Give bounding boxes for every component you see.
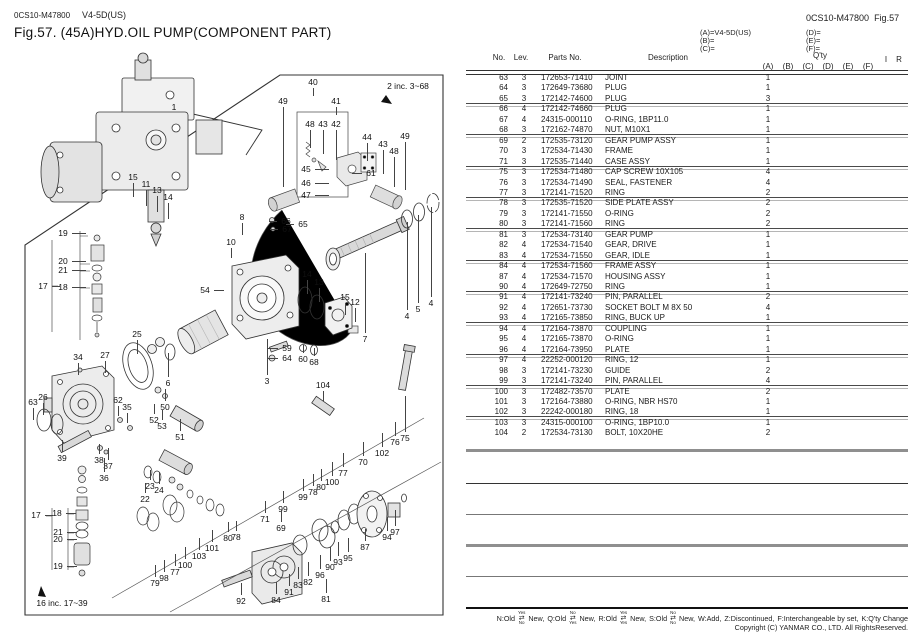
leader-line <box>348 538 349 552</box>
callout-96: 96 <box>315 570 324 580</box>
leader-line <box>185 547 186 559</box>
callout-87: 87 <box>360 542 369 552</box>
callout-67: 67 <box>282 224 291 234</box>
legend-text: W:Add, <box>698 614 721 623</box>
leader-line <box>303 479 304 491</box>
callout-1: 1 <box>172 102 177 112</box>
leader-line <box>319 288 320 302</box>
callout-17: 17 <box>31 510 40 520</box>
callout-92: 92 <box>236 596 245 606</box>
leader-line <box>108 448 109 460</box>
leader-line <box>382 433 383 447</box>
callout-27: 27 <box>100 350 109 360</box>
leader-line <box>363 442 364 456</box>
callout-43: 43 <box>378 139 387 149</box>
callout-22: 22 <box>140 494 149 504</box>
callout-98: 98 <box>159 573 168 583</box>
leader-line <box>67 532 77 533</box>
callout-19: 19 <box>53 561 62 571</box>
leader-line <box>313 88 314 96</box>
callout-18: 18 <box>58 282 67 292</box>
leader-line <box>270 229 278 230</box>
leader-line <box>315 195 329 196</box>
callout-7: 7 <box>363 334 368 344</box>
leader-line <box>367 143 368 161</box>
callout-101: 101 <box>205 543 219 553</box>
leader-line <box>308 562 309 576</box>
callout-39: 39 <box>57 453 66 463</box>
leader-line <box>78 363 79 375</box>
callout-4: 4 <box>429 298 434 308</box>
callout-104: 104 <box>316 380 330 390</box>
leader-line <box>267 339 268 375</box>
assembled-pump-art <box>41 53 222 246</box>
leader-line <box>320 555 321 569</box>
leader-line <box>395 422 396 436</box>
copyright: Copyright (C) YANMAR CO., LTD. All Right… <box>466 623 908 632</box>
legend-text: K:Q'ty Change <box>861 614 908 623</box>
leader-line <box>355 308 356 322</box>
callout-100: 100 <box>178 560 192 570</box>
leader-line <box>326 579 327 593</box>
callout-48: 48 <box>305 119 314 129</box>
callout-42: 42 <box>331 119 340 129</box>
callout-69: 69 <box>276 523 285 533</box>
leader-line <box>104 458 105 472</box>
leader-line <box>268 358 278 359</box>
legend-text: New, <box>528 614 544 623</box>
callout-53: 53 <box>157 421 166 431</box>
leader-line <box>395 510 396 526</box>
callout-77: 77 <box>338 468 347 478</box>
leader-line <box>72 270 86 271</box>
inc2-arrow-icon <box>381 95 392 104</box>
leader-line <box>199 538 200 550</box>
leader-line <box>330 547 331 561</box>
leader-line <box>72 261 86 262</box>
leader-line <box>133 183 134 197</box>
leader-line <box>265 501 266 513</box>
leader-line <box>276 582 277 594</box>
leader-line <box>146 190 147 206</box>
leader-line <box>352 173 362 174</box>
leader-line <box>180 419 181 431</box>
callout-14: 14 <box>302 269 311 279</box>
leader-line <box>313 474 314 486</box>
leader-line <box>314 348 315 356</box>
leader-line <box>72 233 86 234</box>
leader-line <box>338 542 339 556</box>
callout-70: 70 <box>358 457 367 467</box>
leader-line <box>383 150 384 174</box>
leader-line <box>405 396 406 432</box>
leader-line <box>33 408 34 420</box>
callout-54: 54 <box>200 285 209 295</box>
callout-95: 95 <box>343 553 352 563</box>
legend-text: New, <box>679 614 695 623</box>
legend-text: New, <box>630 614 646 623</box>
callout-35: 35 <box>122 402 131 412</box>
leader-line <box>66 513 76 514</box>
leader-line <box>281 510 282 522</box>
leader-line <box>168 203 169 219</box>
leader-line <box>127 413 128 423</box>
callout-68: 68 <box>309 357 318 367</box>
callout-75: 75 <box>400 433 409 443</box>
callout-19: 19 <box>58 228 67 238</box>
callout-3: 3 <box>265 376 270 386</box>
leader-line <box>283 491 284 503</box>
callout-97: 97 <box>390 527 399 537</box>
callout-51: 51 <box>175 432 184 442</box>
callout-18: 18 <box>52 508 61 518</box>
callout-5: 5 <box>416 304 421 314</box>
callout-47: 47 <box>301 190 310 200</box>
leader-line <box>67 566 77 567</box>
leader-line <box>387 517 388 531</box>
leader-line <box>321 469 322 481</box>
leader-line <box>418 215 419 303</box>
callout-99: 99 <box>278 504 287 514</box>
callout-61: 61 <box>366 168 375 178</box>
callout-43: 43 <box>318 119 327 129</box>
inc2-label: 2 inc. 3~68 <box>387 81 429 91</box>
leader-line <box>62 440 63 452</box>
callout-48: 48 <box>389 146 398 156</box>
leader-line <box>365 253 366 333</box>
legend-text: Z:Discontinued, <box>724 614 774 623</box>
callout-60: 60 <box>298 354 307 364</box>
callout-36: 36 <box>99 473 108 483</box>
callout-34: 34 <box>73 352 82 362</box>
leader-line <box>407 222 408 310</box>
inc16-label: 16 inc. 17~39 <box>36 598 87 608</box>
leader-line <box>269 221 277 222</box>
leader-line <box>105 361 106 373</box>
callout-91: 91 <box>284 587 293 597</box>
leader-line <box>431 207 432 297</box>
callout-24: 24 <box>154 485 163 495</box>
callout-41: 41 <box>331 96 340 106</box>
leader-line <box>298 567 299 579</box>
leader-line <box>155 565 156 577</box>
callout-99: 99 <box>298 492 307 502</box>
callout-8: 8 <box>240 212 245 222</box>
leader-line <box>241 583 242 595</box>
callout-10: 10 <box>226 237 235 247</box>
leader-line <box>310 130 311 148</box>
leader-line <box>159 472 160 484</box>
leader-line <box>289 574 290 586</box>
callout-83: 83 <box>293 580 302 590</box>
callout-59: 59 <box>282 343 291 353</box>
callout-78: 78 <box>231 532 240 542</box>
leader-line <box>405 142 406 190</box>
leader-line <box>228 522 229 532</box>
callout-12: 12 <box>350 297 359 307</box>
callout-15: 15 <box>340 292 349 302</box>
leader-line <box>168 353 169 377</box>
callout-102: 102 <box>375 448 389 458</box>
leader-line <box>154 404 155 414</box>
callout-40: 40 <box>308 77 317 87</box>
leader-line <box>332 462 333 476</box>
legend-text: N:Old <box>497 614 515 623</box>
leader-line <box>303 345 304 353</box>
callout-45: 45 <box>301 164 310 174</box>
leader-line <box>307 280 308 294</box>
leader-line <box>336 130 337 160</box>
callout-20: 20 <box>53 534 62 544</box>
relief-valve-stack-lower-art <box>46 466 90 576</box>
leader-line <box>394 157 395 187</box>
leader-line <box>336 107 337 115</box>
exploded-diagram <box>0 0 916 642</box>
leader-line <box>283 107 284 187</box>
leader-line <box>99 444 100 454</box>
leader-line <box>268 348 278 349</box>
parts-catalog-page: 0CS10-M47800 V4-5D(US) Fig.57. (45A)HYD.… <box>0 0 916 642</box>
callout-26: 26 <box>38 392 47 402</box>
callout-65: 65 <box>298 219 307 229</box>
leader-line <box>157 196 158 212</box>
callout-13: 13 <box>152 185 161 195</box>
leader-line <box>315 169 329 170</box>
callout-46: 46 <box>301 178 310 188</box>
leader-line <box>343 453 344 467</box>
callout-21: 21 <box>58 265 67 275</box>
callout-90: 90 <box>325 562 334 572</box>
callout-14: 14 <box>163 192 172 202</box>
callout-76: 76 <box>390 437 399 447</box>
callout-49: 49 <box>400 131 409 141</box>
leader-line <box>165 389 166 401</box>
callout-84: 84 <box>271 595 280 605</box>
leader-line <box>286 224 294 225</box>
leader-line <box>231 248 232 258</box>
legend-text: R:Old <box>598 614 616 623</box>
leader-line <box>162 410 163 420</box>
leader-line <box>145 483 146 493</box>
callout-44: 44 <box>362 132 371 142</box>
leader-line <box>67 539 77 540</box>
callout-82: 82 <box>303 577 312 587</box>
callout-17: 17 <box>38 281 47 291</box>
callout-15: 15 <box>128 172 137 182</box>
leader-line <box>242 223 243 235</box>
legend-text: New, <box>579 614 595 623</box>
leader-line <box>72 287 86 288</box>
callout-25: 25 <box>132 329 141 339</box>
leader-line <box>43 403 44 415</box>
leader-line <box>315 183 329 184</box>
callout-78: 78 <box>308 487 317 497</box>
leader-line <box>175 554 176 566</box>
callout-63: 63 <box>28 397 37 407</box>
shaft-art <box>326 194 439 271</box>
leader-line <box>212 530 213 542</box>
callout-100: 100 <box>325 477 339 487</box>
callout-49: 49 <box>278 96 287 106</box>
callout-81: 81 <box>321 594 330 604</box>
leader-line <box>345 303 346 315</box>
legend-text: Q:Old <box>547 614 566 623</box>
leader-line <box>118 406 119 416</box>
callout-71: 71 <box>260 514 269 524</box>
legend-text: S:Old <box>649 614 667 623</box>
leader-line <box>150 470 151 480</box>
leader-line <box>137 340 138 354</box>
callout-64: 64 <box>282 353 291 363</box>
leader-line <box>323 130 324 154</box>
callout-11: 11 <box>142 179 151 189</box>
inc16-arrow-icon <box>38 586 46 597</box>
leader-line <box>236 521 237 531</box>
callout-6: 6 <box>166 378 171 388</box>
leader-line <box>164 560 165 572</box>
legend-text: F:Interchangeable by set, <box>777 614 858 623</box>
callout-4: 4 <box>405 311 410 321</box>
leader-line <box>214 290 224 291</box>
leader-line <box>365 529 366 541</box>
callout-13: 13 <box>314 277 323 287</box>
leader-line <box>323 391 324 401</box>
